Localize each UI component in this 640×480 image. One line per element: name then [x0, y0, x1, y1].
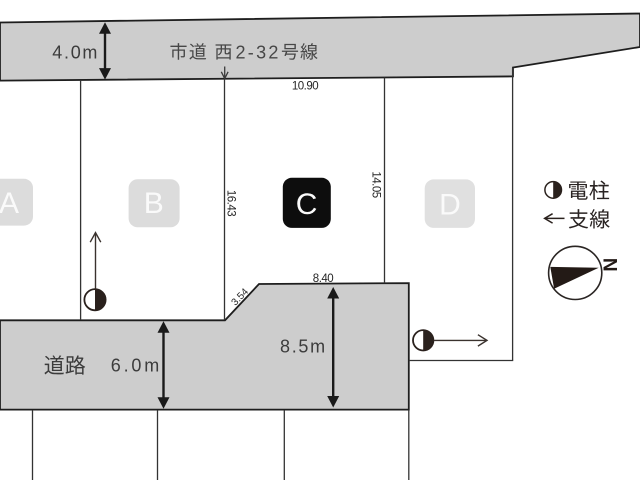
- svg-text:C: C: [296, 188, 318, 221]
- svg-text:2-32: 2-32: [236, 42, 281, 62]
- svg-text:B: B: [144, 187, 164, 220]
- svg-text:14.05: 14.05: [370, 171, 382, 197]
- svg-text:D: D: [439, 189, 461, 222]
- svg-text:8.5m: 8.5m: [280, 336, 327, 356]
- svg-text:8.40: 8.40: [313, 273, 333, 285]
- svg-text:A: A: [0, 187, 19, 220]
- svg-text:6.0m: 6.0m: [111, 355, 162, 375]
- svg-text:16.43: 16.43: [225, 190, 237, 216]
- svg-text:10.90: 10.90: [292, 80, 318, 92]
- svg-text:4.0m: 4.0m: [52, 43, 99, 63]
- svg-text:N: N: [598, 258, 619, 272]
